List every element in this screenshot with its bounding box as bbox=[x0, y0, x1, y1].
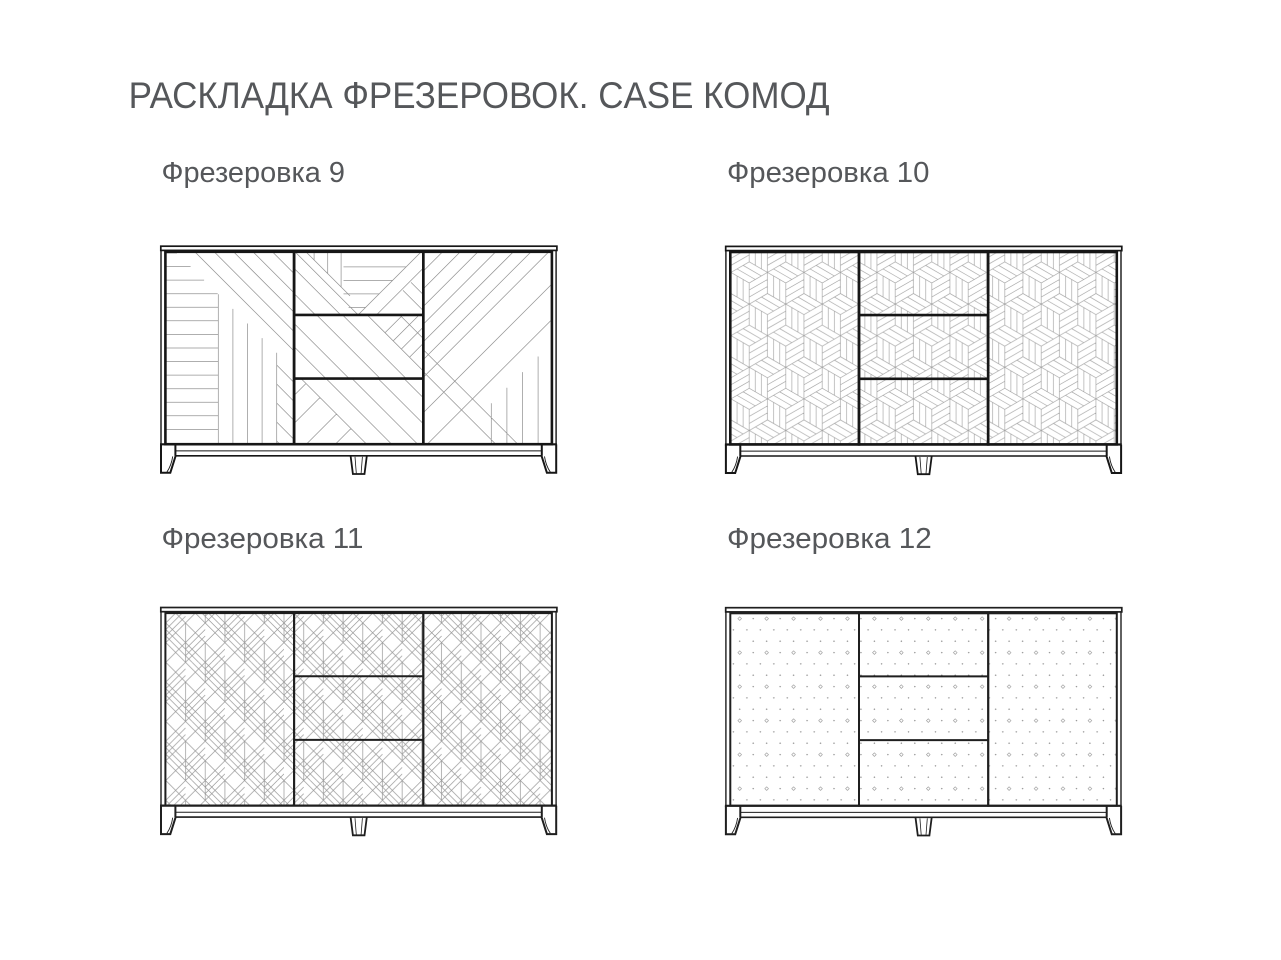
svg-text:Фрезеровка 12: Фрезеровка 12 bbox=[727, 523, 932, 555]
svg-text:Фрезеровка 9: Фрезеровка 9 bbox=[162, 157, 346, 189]
svg-text:Фрезеровка 10: Фрезеровка 10 bbox=[727, 157, 929, 189]
svg-text:Фрезеровка 11: Фрезеровка 11 bbox=[162, 523, 364, 555]
svg-text:РАСКЛАДКА ФРЕЗЕРОВОК. CASE КОМ: РАСКЛАДКА ФРЕЗЕРОВОК. CASE КОМОД bbox=[129, 75, 830, 116]
